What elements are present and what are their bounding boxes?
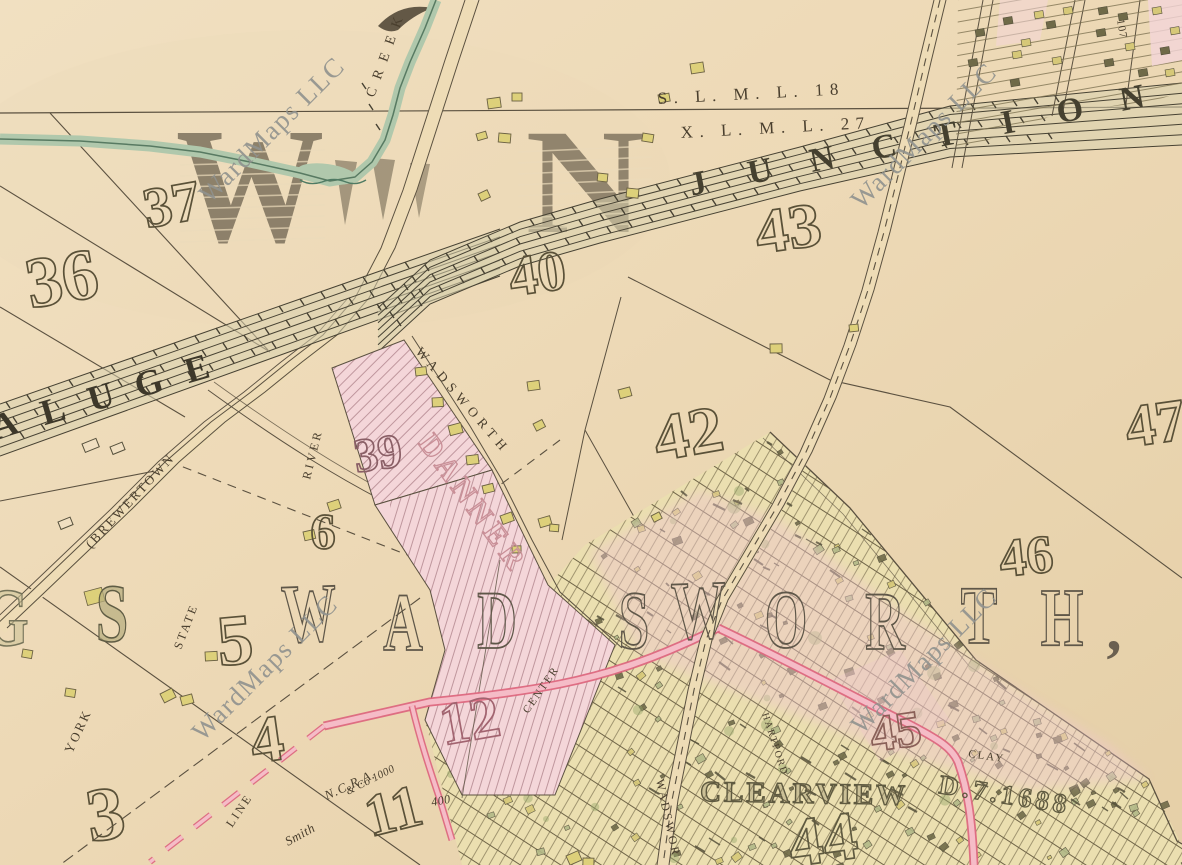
svg-text:D: D	[477, 575, 517, 667]
svg-text:R: R	[865, 576, 906, 668]
svg-text:42: 42	[648, 391, 729, 475]
svg-text:W: W	[670, 564, 728, 658]
svg-text:G: G	[0, 572, 29, 664]
svg-text:12: 12	[434, 683, 505, 758]
svg-text:A: A	[383, 577, 423, 669]
svg-text:,: ,	[1107, 597, 1122, 663]
svg-text:36: 36	[19, 233, 104, 324]
svg-text:6: 6	[310, 505, 336, 561]
svg-text:40: 40	[505, 239, 570, 309]
svg-text:O: O	[765, 574, 808, 666]
svg-text:43: 43	[750, 188, 825, 267]
svg-text:H: H	[1041, 572, 1084, 664]
svg-text:47: 47	[1121, 386, 1182, 460]
svg-text:S: S	[619, 575, 649, 667]
svg-text:CLEARVIEW: CLEARVIEW	[700, 776, 909, 812]
svg-text:S: S	[96, 568, 128, 660]
svg-text:37: 37	[138, 169, 205, 241]
svg-text:39: 39	[350, 424, 405, 483]
